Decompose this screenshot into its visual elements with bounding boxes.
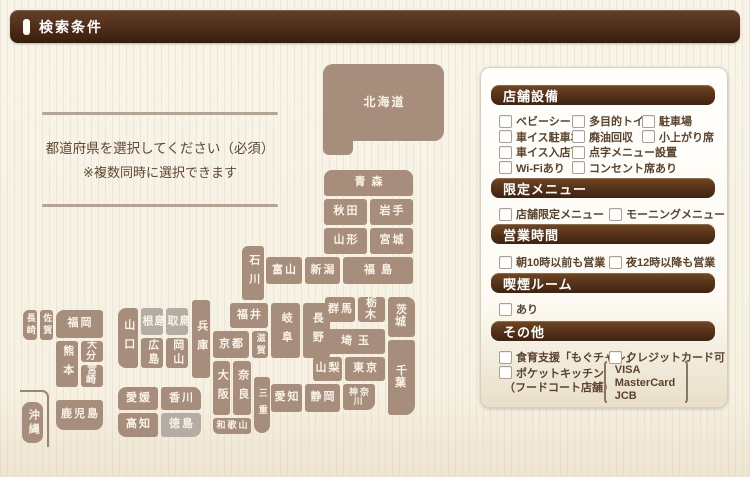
checkbox-unchecked[interactable]: [572, 130, 585, 143]
pref-chiba[interactable]: 千葉: [388, 340, 415, 415]
checkbox-unchecked[interactable]: [609, 208, 622, 221]
filter-option[interactable]: 小上がり席: [642, 129, 714, 145]
search-conditions-page: 検索条件 都道府県を選択してください（必須） ※複数同時に選択できます 北海道青…: [0, 0, 750, 477]
filter-option[interactable]: 駐車場: [642, 113, 692, 129]
pref-miyagi[interactable]: 宮城: [370, 228, 413, 254]
checkbox-unchecked[interactable]: [572, 161, 585, 174]
card-brand: VISA: [615, 364, 676, 377]
checkbox-unchecked[interactable]: [572, 115, 585, 128]
intro-line-1: 都道府県を選択してください（必須）: [42, 137, 278, 157]
pocket-kitchen-note: （フードコート店舗）: [504, 379, 614, 395]
filter-option-label: あり: [516, 301, 538, 317]
pref-hokkaido-peninsula: [323, 140, 353, 155]
checkbox-unchecked[interactable]: [499, 208, 512, 221]
intro-divider-top: [42, 112, 278, 115]
filter-option-label: モーニングメニュー: [626, 206, 725, 222]
pref-kagawa[interactable]: 香川: [161, 387, 201, 410]
pref-tottori: 鳥取: [166, 308, 188, 335]
pref-oita[interactable]: 大分: [81, 341, 103, 362]
pref-saga[interactable]: 佐賀: [40, 310, 53, 340]
filter-option[interactable]: モーニングメニュー: [609, 206, 725, 222]
filter-row: 車イス入店可点字メニュー設置: [481, 144, 729, 159]
filter-option-label: 朝10時以前も営業: [516, 254, 605, 270]
filter-option[interactable]: Wi-Fiあり: [499, 160, 565, 176]
pref-niigata[interactable]: 新潟: [305, 257, 340, 284]
filter-option-label: 点字メニュー設置: [589, 144, 677, 160]
checkbox-unchecked[interactable]: [642, 115, 655, 128]
filter-row: 店舗限定メニューモーニングメニュー: [481, 206, 729, 221]
section-header-1: 店舗設備: [491, 85, 715, 105]
pref-miyazaki[interactable]: 宮崎: [81, 365, 103, 387]
pref-hiroshima[interactable]: 広島: [141, 338, 163, 368]
filter-option[interactable]: 店舗限定メニュー: [499, 206, 604, 222]
pref-ehime[interactable]: 愛媛: [118, 387, 158, 410]
pref-ishikawa[interactable]: 石川: [242, 246, 264, 300]
filter-option[interactable]: 点字メニュー設置: [572, 144, 677, 160]
page-title: 検索条件: [39, 17, 103, 37]
checkbox-unchecked[interactable]: [572, 146, 585, 159]
checkbox-unchecked[interactable]: [499, 161, 512, 174]
card-brand-list: VISAMasterCardJCB: [607, 361, 686, 403]
filter-option[interactable]: コンセント席あり: [572, 160, 677, 176]
checkbox-unchecked[interactable]: [499, 351, 512, 364]
filter-option-label: 小上がり席: [659, 129, 714, 145]
pref-wakayama[interactable]: 和歌山: [213, 418, 251, 434]
intro-divider-bottom: [42, 204, 278, 207]
pref-tokyo[interactable]: 東京: [345, 357, 385, 381]
checkbox-unchecked[interactable]: [499, 303, 512, 316]
pref-saitama[interactable]: 埼玉: [325, 329, 385, 354]
filter-option[interactable]: 朝10時以前も営業: [499, 254, 605, 270]
filter-option-label: 夜12時以降も営業: [626, 254, 715, 270]
pref-okinawa[interactable]: 沖縄: [22, 402, 43, 443]
pref-yamaguchi[interactable]: 山口: [118, 308, 138, 368]
header-accent-bar-icon: [23, 19, 30, 35]
pref-toyama[interactable]: 富山: [266, 257, 302, 284]
checkbox-unchecked[interactable]: [499, 146, 512, 159]
pref-akita[interactable]: 秋田: [324, 199, 367, 225]
pref-iwate[interactable]: 岩手: [370, 199, 413, 225]
pref-hyogo[interactable]: 兵庫: [192, 300, 210, 378]
checkbox-unchecked[interactable]: [499, 130, 512, 143]
pref-shimane: 島根: [141, 308, 163, 335]
page-header: 検索条件: [10, 10, 740, 43]
pref-tochigi[interactable]: 栃木: [358, 297, 385, 322]
pref-nara[interactable]: 奈良: [233, 361, 251, 415]
pref-kanagawa[interactable]: 神奈川: [343, 384, 375, 410]
intro-line-2: ※複数同時に選択できます: [42, 162, 278, 181]
filter-row: 朝10時以前も営業夜12時以降も営業: [481, 254, 729, 269]
pref-okayama[interactable]: 岡山: [166, 338, 188, 368]
filter-option-label: 駐車場: [659, 113, 692, 129]
pref-fukuoka[interactable]: 福岡: [56, 310, 103, 338]
pref-kumamoto[interactable]: 熊本: [56, 341, 78, 387]
pref-osaka[interactable]: 大阪: [213, 361, 230, 415]
filter-option[interactable]: 車イス駐車場: [499, 129, 582, 145]
pref-gunma[interactable]: 群馬: [325, 297, 355, 322]
filter-row: Wi-Fiありコンセント席あり: [481, 160, 729, 175]
pref-yamanashi[interactable]: 山梨: [313, 357, 342, 381]
checkbox-unchecked[interactable]: [609, 256, 622, 269]
pref-kagoshima[interactable]: 鹿児島: [56, 400, 103, 430]
filter-option[interactable]: あり: [499, 301, 538, 317]
filter-option-label: コンセント席あり: [589, 160, 677, 176]
pref-mie[interactable]: 三重: [254, 377, 270, 433]
filter-row: 車イス駐車場廃油回収小上がり席: [481, 129, 729, 144]
pref-hokkaido[interactable]: 北海道: [323, 64, 444, 141]
pref-shizuoka[interactable]: 静岡: [305, 384, 340, 412]
pref-shiga[interactable]: 滋賀: [252, 331, 268, 358]
filter-option-label: 店舗限定メニュー: [516, 206, 604, 222]
search-filter-panel: 店舗設備ベビーシート多目的トイレ駐車場車イス駐車場廃油回収小上がり席車イス入店可…: [480, 67, 728, 408]
section-header-4: 喫煙ルーム: [491, 273, 715, 293]
filter-option[interactable]: 車イス入店可: [499, 144, 582, 160]
pref-fukushima[interactable]: 福島: [343, 257, 413, 284]
pref-kochi[interactable]: 高知: [118, 413, 158, 437]
section-header-5: その他: [491, 321, 715, 341]
pref-tokushima: 徳島: [161, 413, 201, 437]
card-brand: MasterCard: [615, 377, 676, 390]
pref-gifu[interactable]: 岐阜: [271, 303, 300, 358]
section-header-3: 営業時間: [491, 224, 715, 244]
filter-row: あり: [481, 301, 729, 316]
bracket-right: [685, 361, 688, 403]
filter-option[interactable]: 夜12時以降も営業: [609, 254, 715, 270]
pref-ibaraki[interactable]: 茨城: [388, 297, 415, 337]
pref-aomori[interactable]: 青森: [324, 170, 413, 196]
filter-option-label: Wi-Fiあり: [516, 160, 565, 176]
checkbox-unchecked[interactable]: [499, 115, 512, 128]
credit-card-brands: VISAMasterCardJCB: [604, 361, 688, 403]
checkbox-unchecked[interactable]: [499, 366, 512, 379]
checkbox-unchecked[interactable]: [642, 130, 655, 143]
pref-nagasaki[interactable]: 長崎: [23, 310, 37, 340]
section-header-2: 限定メニュー: [491, 178, 715, 198]
pref-kyoto[interactable]: 京都: [213, 331, 249, 358]
filter-row: ベビーシート多目的トイレ駐車場: [481, 113, 729, 128]
filter-option-label: 廃油回収: [589, 129, 633, 145]
checkbox-unchecked[interactable]: [499, 256, 512, 269]
pref-yamagata[interactable]: 山形: [324, 228, 367, 254]
pref-fukui[interactable]: 福井: [230, 303, 268, 328]
filter-option[interactable]: 廃油回収: [572, 129, 633, 145]
card-brand: JCB: [615, 390, 676, 403]
filter-option[interactable]: ベビーシート: [499, 113, 582, 129]
pref-aichi[interactable]: 愛知: [271, 384, 302, 412]
